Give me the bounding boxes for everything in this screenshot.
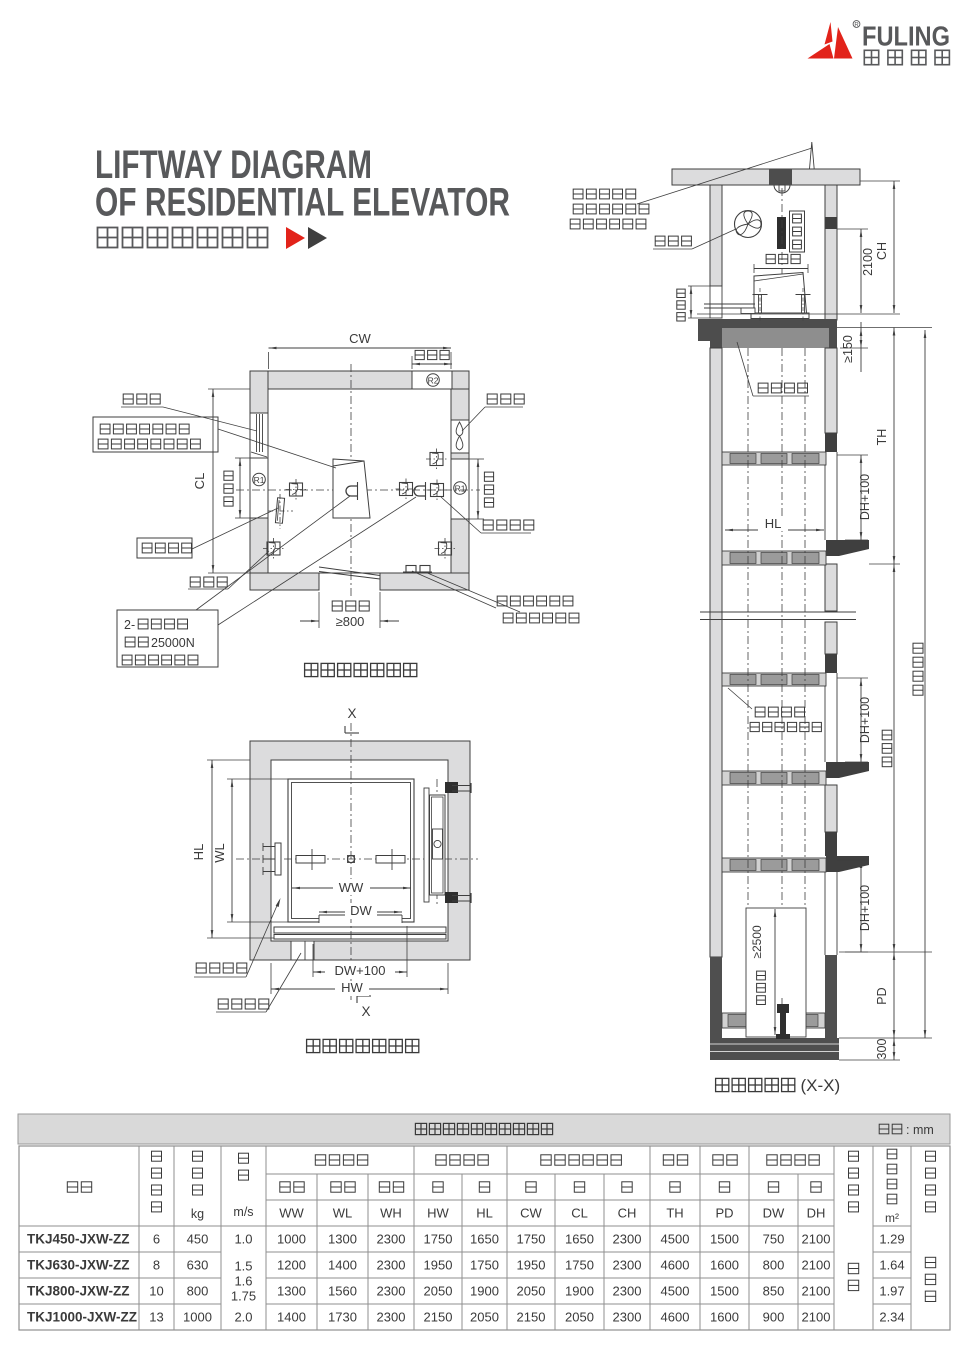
svg-text:HW: HW [427,1206,449,1221]
svg-text:1400: 1400 [277,1310,306,1325]
svg-text:CL: CL [192,473,207,490]
svg-text:6: 6 [153,1232,160,1247]
svg-text:1300: 1300 [277,1284,306,1299]
svg-text:800: 800 [763,1258,785,1273]
svg-text:OF RESIDENTIAL ELEVATOR: OF RESIDENTIAL ELEVATOR [95,181,510,225]
svg-text:2.0: 2.0 [234,1310,252,1325]
svg-text:1.29: 1.29 [879,1232,904,1247]
svg-text:≥800: ≥800 [336,614,365,629]
svg-text:2100: 2100 [802,1310,831,1325]
svg-text:750: 750 [763,1232,785,1247]
svg-text:HL: HL [476,1206,493,1221]
svg-text:1500: 1500 [710,1284,739,1299]
svg-text:4600: 4600 [661,1258,690,1273]
svg-text:1200: 1200 [277,1258,306,1273]
svg-text:TKJ450-JXW-ZZ: TKJ450-JXW-ZZ [27,1232,130,1247]
svg-text:WL: WL [212,843,227,863]
svg-text:1500: 1500 [710,1232,739,1247]
svg-text:TKJ800-JXW-ZZ: TKJ800-JXW-ZZ [27,1284,130,1299]
svg-text:DW+100: DW+100 [335,963,386,978]
svg-text:2300: 2300 [377,1258,406,1273]
svg-text:1.75: 1.75 [231,1289,256,1304]
svg-text:HL: HL [765,516,782,531]
svg-text:1400: 1400 [328,1258,357,1273]
svg-text:HW: HW [341,980,363,995]
svg-text:450: 450 [187,1232,209,1247]
svg-text:1750: 1750 [517,1232,546,1247]
svg-text:1900: 1900 [470,1284,499,1299]
svg-text:4500: 4500 [661,1284,690,1299]
svg-text:800: 800 [187,1284,209,1299]
svg-text:kg: kg [191,1207,204,1221]
svg-text:1.97: 1.97 [879,1284,904,1299]
svg-text:TH: TH [875,429,889,446]
svg-text:TKJ1000-JXW-ZZ: TKJ1000-JXW-ZZ [27,1310,137,1325]
svg-text:1.64: 1.64 [879,1258,904,1273]
svg-text:≥2500: ≥2500 [750,925,764,959]
svg-text:2300: 2300 [377,1232,406,1247]
svg-text:R: R [854,23,859,29]
svg-text:CL: CL [571,1206,588,1221]
svg-text:CW: CW [520,1206,542,1221]
svg-text:CH: CH [618,1206,637,1221]
svg-text:1650: 1650 [565,1232,594,1247]
svg-text:1300: 1300 [328,1232,357,1247]
svg-text:2.34: 2.34 [879,1310,904,1325]
svg-text:DH+100: DH+100 [858,885,872,931]
svg-text:300: 300 [875,1039,889,1060]
svg-text:WW: WW [279,1206,304,1221]
svg-text:TH: TH [666,1206,683,1221]
svg-text:1650: 1650 [470,1232,499,1247]
svg-text:1.5: 1.5 [234,1259,252,1274]
svg-text:900: 900 [763,1310,785,1325]
svg-text:1750: 1750 [565,1258,594,1273]
svg-text:2150: 2150 [424,1310,453,1325]
svg-text:2050: 2050 [565,1310,594,1325]
svg-text:4600: 4600 [661,1310,690,1325]
svg-text:CH: CH [875,242,889,260]
svg-text:2300: 2300 [613,1258,642,1273]
svg-text:R2: R2 [428,375,439,385]
svg-text:1600: 1600 [710,1310,739,1325]
svg-text:2100: 2100 [861,248,875,276]
svg-text:1.6: 1.6 [234,1274,252,1289]
svg-text:m²: m² [885,1211,899,1225]
svg-text:2300: 2300 [613,1284,642,1299]
svg-text:1560: 1560 [328,1284,357,1299]
svg-text:DW: DW [763,1206,785,1221]
svg-text:(X-X): (X-X) [801,1076,841,1095]
svg-text:2050: 2050 [424,1284,453,1299]
svg-text:2300: 2300 [377,1310,406,1325]
svg-text:WW: WW [339,880,364,895]
svg-text:10: 10 [149,1284,163,1299]
svg-text:PD: PD [715,1206,733,1221]
svg-text:2300: 2300 [377,1284,406,1299]
svg-text:2050: 2050 [517,1284,546,1299]
svg-text:8: 8 [153,1258,160,1273]
svg-text:DW: DW [350,903,372,918]
svg-text:FULING: FULING [862,21,950,52]
svg-text:1.0: 1.0 [234,1232,252,1247]
svg-text:2050: 2050 [470,1310,499,1325]
svg-text:25000N: 25000N [151,636,195,650]
svg-text:≥150: ≥150 [841,335,855,363]
svg-text:: mm: : mm [906,1123,934,1137]
svg-text:2100: 2100 [802,1232,831,1247]
svg-text:2100: 2100 [802,1258,831,1273]
svg-text:WL: WL [333,1206,353,1221]
svg-text:1750: 1750 [470,1258,499,1273]
svg-text:X: X [347,706,356,721]
svg-text:13: 13 [149,1310,163,1325]
svg-text:HL: HL [191,844,206,861]
svg-text:2300: 2300 [613,1310,642,1325]
svg-text:2100: 2100 [802,1284,831,1299]
svg-text:1950: 1950 [424,1258,453,1273]
svg-text:DH+100: DH+100 [858,474,872,520]
svg-text:WH: WH [380,1206,402,1221]
svg-text:PD: PD [875,987,889,1004]
svg-text:4500: 4500 [661,1232,690,1247]
svg-text:DH: DH [807,1206,826,1221]
svg-text:1750: 1750 [424,1232,453,1247]
svg-text:TKJ630-JXW-ZZ: TKJ630-JXW-ZZ [27,1258,130,1273]
svg-text:2-: 2- [124,618,135,632]
svg-text:R1: R1 [455,483,466,493]
svg-text:CW: CW [349,331,371,346]
svg-text:630: 630 [187,1258,209,1273]
svg-text:X: X [361,1004,370,1019]
svg-text:850: 850 [763,1284,785,1299]
svg-text:2150: 2150 [517,1310,546,1325]
svg-text:DH+100: DH+100 [858,697,872,743]
svg-text:R1: R1 [254,475,265,485]
svg-text:1730: 1730 [328,1310,357,1325]
svg-text:1600: 1600 [710,1258,739,1273]
svg-text:1900: 1900 [565,1284,594,1299]
svg-text:1000: 1000 [277,1232,306,1247]
svg-text:m/s: m/s [233,1205,253,1219]
svg-text:2300: 2300 [613,1232,642,1247]
svg-text:1000: 1000 [183,1310,212,1325]
svg-text:1950: 1950 [517,1258,546,1273]
